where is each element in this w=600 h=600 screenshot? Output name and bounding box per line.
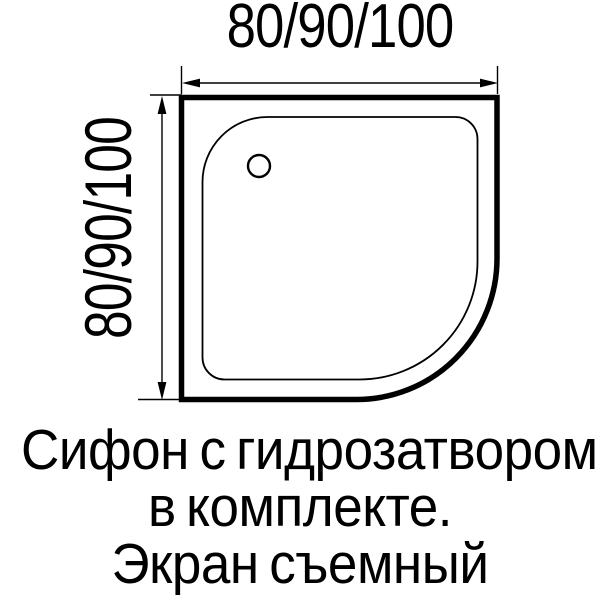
product-caption: Сифон с гидрозатвором в комплекте. Экран… bbox=[21, 422, 579, 593]
height-arrowhead-top-icon bbox=[158, 96, 167, 114]
caption-line-3: Экран съемный bbox=[21, 536, 579, 593]
drain-hole bbox=[248, 155, 270, 177]
tray-inner-outline bbox=[203, 117, 478, 380]
width-dimension-arrow bbox=[182, 79, 498, 88]
product-diagram-page: 80/90/100 80/90/100 Сифон с гидрозатворо… bbox=[0, 0, 600, 600]
height-dimension-label: 80/90/100 bbox=[75, 117, 141, 339]
height-arrowhead-bottom-icon bbox=[158, 382, 167, 400]
height-dimension-arrow bbox=[158, 96, 167, 400]
width-dimension-label: 80/90/100 bbox=[207, 0, 474, 58]
width-arrowhead-right-icon bbox=[480, 79, 498, 88]
width-arrowhead-left-icon bbox=[182, 79, 200, 88]
caption-line-2: в комплекте. bbox=[21, 479, 579, 536]
caption-line-1: Сифон с гидрозатвором bbox=[21, 422, 579, 479]
